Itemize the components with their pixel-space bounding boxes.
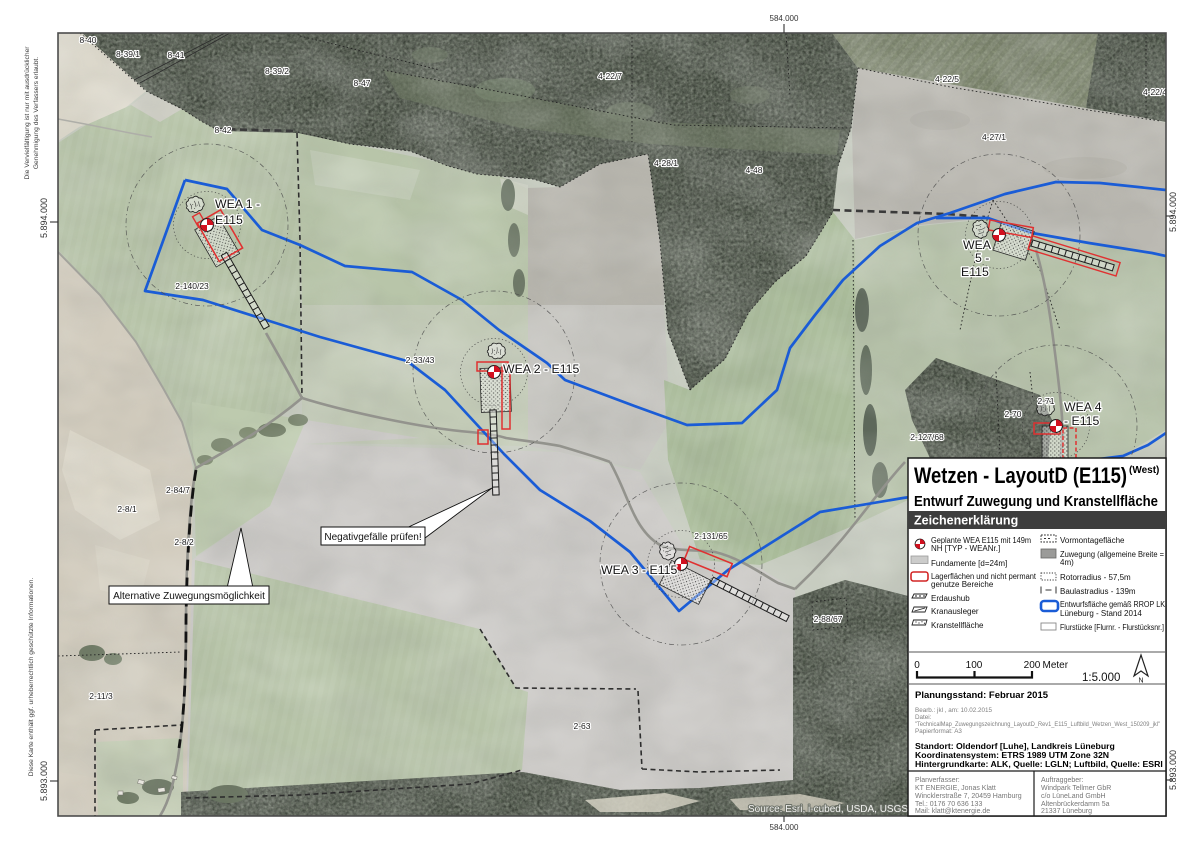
- svg-text:Zuwegung (allgemeine Breite =: Zuwegung (allgemeine Breite =: [1060, 550, 1164, 559]
- svg-text:Lüneburg - Stand 2014: Lüneburg - Stand 2014: [1060, 609, 1142, 618]
- svg-text:1:5.000: 1:5.000: [1082, 672, 1120, 684]
- svg-text:N: N: [1138, 678, 1143, 685]
- svg-text:Negativgefälle prüfen!: Negativgefälle prüfen!: [324, 532, 421, 543]
- svg-text:Windpark Tellmer GbR: Windpark Tellmer GbR: [1041, 785, 1111, 792]
- svg-text:8-41: 8-41: [167, 50, 184, 60]
- svg-text:Erdaushub: Erdaushub: [931, 594, 970, 603]
- svg-text:8-47: 8-47: [353, 78, 370, 88]
- svg-text:Genehmigung des Verfassers erl: Genehmigung des Verfassers erlaubt.: [33, 57, 40, 169]
- svg-text:Papierformat: A3: Papierformat: A3: [915, 728, 962, 735]
- svg-text:Kranstellfläche: Kranstellfläche: [931, 621, 984, 630]
- svg-text:5.893.000: 5.893.000: [39, 761, 49, 801]
- svg-text:Zeichenerklärung: Zeichenerklärung: [914, 514, 1018, 528]
- svg-text:Datei:: Datei:: [915, 714, 932, 721]
- svg-text:4-28/1: 4-28/1: [654, 158, 678, 168]
- svg-text:WEA 1 -: WEA 1 -: [215, 197, 260, 211]
- svg-text:0: 0: [914, 660, 920, 671]
- svg-text:WEA: WEA: [963, 238, 992, 252]
- svg-text:Tel.: 0176 70 636 133: Tel.: 0176 70 636 133: [915, 801, 982, 808]
- svg-text:2-131/65: 2-131/65: [694, 531, 728, 541]
- svg-text:Die Vervielfältigung ist nur m: Die Vervielfältigung ist nur mit ausdrüc…: [24, 46, 31, 180]
- svg-text:genutze Bereiche: genutze Bereiche: [931, 580, 994, 589]
- svg-text:Entwurfsfläche gemäß RROP LK: Entwurfsfläche gemäß RROP LK: [1060, 600, 1166, 609]
- svg-text:Wetzen - LayoutD (E115): Wetzen - LayoutD (E115): [914, 463, 1127, 488]
- svg-text:Fundamente [d=24m]: Fundamente [d=24m]: [931, 559, 1007, 568]
- svg-text:E115: E115: [215, 213, 243, 227]
- svg-text:Kranausleger: Kranausleger: [931, 607, 979, 616]
- svg-text:Planungsstand: Februar 2015: Planungsstand: Februar 2015: [915, 690, 1049, 701]
- svg-text:Mail: klatt@ktenergie.de: Mail: klatt@ktenergie.de: [915, 808, 990, 815]
- svg-text:8-42: 8-42: [214, 125, 231, 135]
- svg-text:WEA 4: WEA 4: [1064, 400, 1102, 414]
- svg-text:- E115: - E115: [1064, 414, 1099, 428]
- svg-text:Meter: Meter: [1043, 660, 1069, 671]
- svg-text:2-8/2: 2-8/2: [174, 537, 194, 547]
- svg-text:"TechnicalMap_Zuwegungszeichnu: "TechnicalMap_Zuwegungszeichnung_LayoutD…: [915, 721, 1160, 728]
- svg-text:8-40: 8-40: [79, 35, 96, 45]
- svg-text:5.894.000: 5.894.000: [39, 198, 49, 238]
- svg-text:2-63: 2-63: [573, 721, 590, 731]
- svg-text:Bearb.: jkl , am: 10.02.2015: Bearb.: jkl , am: 10.02.2015: [915, 707, 993, 714]
- svg-text:4-48: 4-48: [745, 165, 762, 175]
- svg-text:2-140/23: 2-140/23: [175, 281, 209, 291]
- svg-text:100: 100: [966, 660, 983, 671]
- svg-text:Diese Karte enthält ggf. urheb: Diese Karte enthält ggf. urheberrechtlic…: [28, 578, 35, 777]
- svg-text:Entwurf Zuwegung und Kranstell: Entwurf Zuwegung und Kranstellfläche: [914, 494, 1158, 510]
- svg-text:Rotorradius - 57,5m: Rotorradius - 57,5m: [1060, 573, 1131, 582]
- svg-text:5 -: 5 -: [975, 251, 989, 265]
- svg-text:5.893.000: 5.893.000: [1168, 750, 1178, 790]
- svg-text:584.000: 584.000: [770, 14, 799, 23]
- svg-text:8-39/2: 8-39/2: [265, 66, 289, 76]
- svg-text:Auftraggeber:: Auftraggeber:: [1041, 777, 1083, 784]
- svg-text:2-71: 2-71: [1037, 396, 1054, 406]
- svg-text:KT ENERGIE, Jonas Klatt: KT ENERGIE, Jonas Klatt: [915, 785, 996, 792]
- svg-text:2-84/7: 2-84/7: [166, 485, 190, 495]
- svg-text:Hintergrundkarte: ALK, Quelle:: Hintergrundkarte: ALK, Quelle: LGLN; Luf…: [915, 759, 1163, 769]
- svg-text:200: 200: [1024, 660, 1041, 671]
- svg-text:8-39/1: 8-39/1: [116, 49, 140, 59]
- svg-text:WEA 3 - E115: WEA 3 - E115: [601, 563, 677, 577]
- svg-text:21337 Lüneburg: 21337 Lüneburg: [1041, 808, 1092, 815]
- svg-text:c/o LüneLand GmbH: c/o LüneLand GmbH: [1041, 793, 1106, 800]
- svg-text:Vormontagefläche: Vormontagefläche: [1060, 536, 1125, 545]
- svg-text:2-88/67: 2-88/67: [814, 614, 843, 624]
- svg-text:Altenbrückerdamm 5a: Altenbrückerdamm 5a: [1041, 801, 1110, 808]
- svg-text:4-22/4: 4-22/4: [1143, 87, 1167, 97]
- svg-text:(West): (West): [1129, 465, 1159, 476]
- svg-text:Planverfasser:: Planverfasser:: [915, 777, 960, 784]
- svg-text:2-8/1: 2-8/1: [117, 504, 137, 514]
- svg-text:WEA 2 - E115: WEA 2 - E115: [503, 362, 579, 376]
- svg-text:4-27/1: 4-27/1: [982, 132, 1006, 142]
- svg-text:584.000: 584.000: [770, 823, 799, 832]
- svg-text:2-33/43: 2-33/43: [406, 355, 435, 365]
- svg-text:Alternative Zuwegungsmöglichke: Alternative Zuwegungsmöglichkeit: [113, 591, 265, 602]
- svg-text:NH [TYP - WEANr.]: NH [TYP - WEANr.]: [931, 544, 1000, 553]
- svg-text:4-22/7: 4-22/7: [598, 71, 622, 81]
- svg-text:Flurstücke [Flurnr. - Flurstüc: Flurstücke [Flurnr. - Flurstücksnr.]: [1060, 623, 1164, 632]
- svg-text:2-127/68: 2-127/68: [910, 432, 944, 442]
- svg-text:2-11/3: 2-11/3: [89, 691, 113, 701]
- svg-text:4-22/5: 4-22/5: [935, 74, 959, 84]
- svg-text:Wincklerstraße 7, 20459 Hambur: Wincklerstraße 7, 20459 Hamburg: [915, 793, 1022, 800]
- svg-text:5.894.000: 5.894.000: [1168, 192, 1178, 232]
- svg-text:Baulastradius - 139m: Baulastradius - 139m: [1060, 587, 1136, 596]
- svg-text:E115: E115: [961, 265, 989, 279]
- svg-text:2-70: 2-70: [1004, 409, 1021, 419]
- svg-text:4m): 4m): [1060, 558, 1074, 567]
